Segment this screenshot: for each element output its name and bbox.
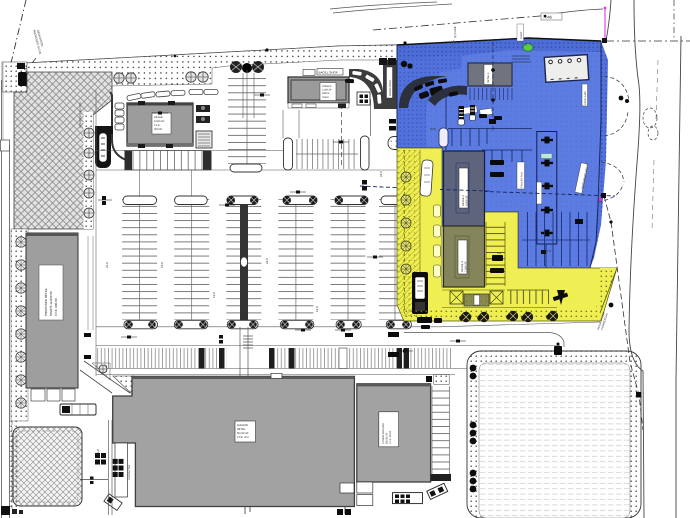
svg-text:19.0: 19.0 [212,292,216,298]
svg-text:BAGEL SHOP: BAGEL SHOP [319,70,338,74]
svg-text:F.F.E. 00.00: F.F.E. 00.00 [389,430,392,444]
svg-text:JUNIOR ANCHOR: JUNIOR ANCHOR [382,423,385,444]
svg-text:30.0: 30.0 [96,449,100,455]
svg-text:ANCHOR: ANCHOR [237,424,248,427]
svg-text:F.F.E. 00.0: F.F.E. 00.0 [237,436,249,439]
svg-text:4,500 SF: 4,500 SF [154,120,165,123]
svg-text:24.0: 24.0 [105,262,109,268]
svg-text:COMPACTOR: COMPACTOR [128,464,131,480]
svg-text:24.0: 24.0 [265,258,269,264]
svg-text:RETAIL: RETAIL [237,428,246,431]
svg-text:COFFEE: COFFEE [322,85,332,88]
svg-text:SHOPS 12,000 SF: SHOPS 12,000 SF [49,291,53,316]
svg-text:7,200 SF: 7,200 SF [464,261,467,272]
svg-text:2,000 SF: 2,000 SF [322,89,332,92]
svg-text:RETAIL 1: RETAIL 1 [487,72,490,83]
svg-text:F.F.E. 000.00: F.F.E. 000.00 [54,298,58,316]
svg-text:DRIVE-THRU: DRIVE-THRU [389,80,392,96]
svg-text:LIGHT: LIGHT [520,31,523,39]
svg-text:28,000 SF: 28,000 SF [386,432,389,444]
svg-text:THRU: THRU [322,96,329,99]
svg-text:RETAIL: RETAIL [154,116,163,119]
svg-text:55,000 SF: 55,000 SF [237,432,249,435]
svg-text:9.0: 9.0 [497,251,502,255]
svg-text:CONV 3,000: CONV 3,000 [584,91,587,105]
svg-text:F.F.E.: F.F.E. [154,124,161,127]
svg-text:DRIVE: DRIVE [322,92,330,95]
svg-text:TRAILER PKG: TRAILER PKG [521,172,524,188]
svg-text:24.0: 24.0 [379,171,383,177]
svg-text:R30: R30 [430,127,436,131]
svg-text:19.0: 19.0 [315,306,319,312]
svg-text:19.0: 19.0 [160,262,164,268]
svg-text:LANDSCAPE BUFFER: LANDSCAPE BUFFER [79,102,82,128]
svg-text:(P) CURB: (P) CURB [454,26,457,38]
svg-text:000.00: 000.00 [154,128,162,131]
svg-text:9,000 SF: 9,000 SF [465,195,468,206]
svg-text:24.0: 24.0 [545,249,551,253]
svg-text:PROPOSED RETAIL: PROPOSED RETAIL [44,288,48,316]
